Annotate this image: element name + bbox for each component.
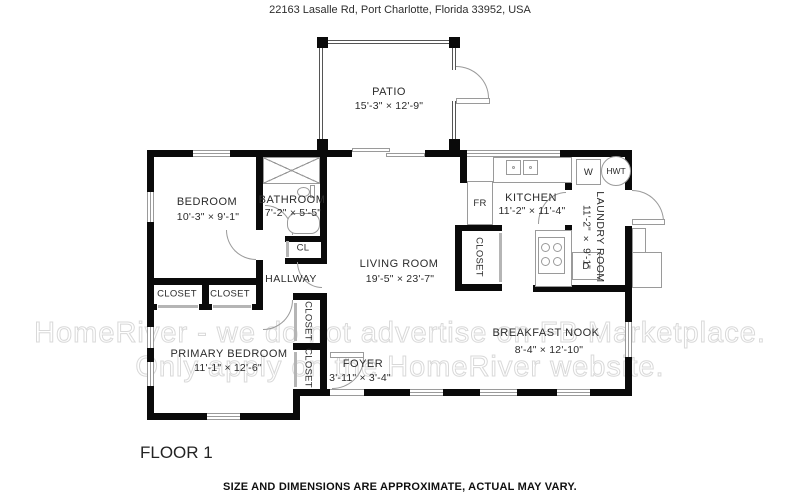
patio-dims: 15'-3" × 12'-9" [355,100,423,112]
sink-drain [512,166,515,169]
patio-screen-wall [319,48,323,139]
stove-burner [541,257,550,266]
closet-door [294,352,297,387]
patio-screen-wall [328,40,449,44]
closet-door [158,305,198,308]
window [207,413,240,420]
refrigerator: FR [467,181,493,225]
patio-door-swing [456,66,489,98]
bedroom-dims: 10'-3" × 9'-1" [177,211,239,223]
wall [455,225,502,231]
closet-door [213,305,251,308]
bedroom-door-swing [226,230,256,260]
sliding-door [386,153,425,157]
window [557,389,590,396]
wall [256,260,263,278]
window [147,192,154,222]
patio-post [317,37,328,48]
hallway-label: HALLWAY [265,273,317,285]
patio-post [317,139,328,150]
cl-closet-label: CL [297,243,310,254]
stoop-step [632,252,662,288]
stove [538,237,565,274]
window [625,322,632,357]
wall [425,150,467,157]
closet-label: CLOSET [303,301,314,341]
exterior-door-swing [632,190,664,222]
sliding-door [352,148,390,152]
front-door-opening [330,389,364,396]
breakfast-nook-dims: 8'-4" × 12'-10" [515,344,583,356]
wall [455,225,462,291]
primary-bedroom-label: PRIMARY BEDROOM [170,348,287,360]
patio-post [449,37,460,48]
wall [199,304,212,310]
patio-label: PATIO [372,86,406,98]
primary-bedroom-dims: 11'-1" × 12'-6" [194,362,262,374]
breakfast-nook-label: BREAKFAST NOOK [492,327,599,339]
sink-drain [529,166,532,169]
wall [147,304,157,310]
primary-bedroom-door-swing [263,300,293,330]
wall [443,389,480,396]
window [147,327,154,348]
window [193,150,230,157]
water-heater: HWT [601,156,631,186]
window [410,389,443,396]
wall [240,413,300,420]
wall [321,236,327,264]
patio-screen-wall [452,101,456,139]
bathroom-label: BATHROOM [259,194,326,206]
floor-plan-drawing: FR W HWT D PATIO 15'-3" × 12'-9" BEDROOM… [0,0,800,499]
wall [252,304,263,310]
laundry-label: LAUNDRY ROOM [594,191,606,282]
laundry-dims: 11'-2" × 9'-1" [581,205,592,269]
washer: W [576,159,601,185]
window [480,389,517,396]
shower [263,157,320,184]
kitchen-label: KITCHEN [505,192,557,204]
wall [625,357,632,396]
wall [625,226,632,322]
wall [517,389,557,396]
living-room-dims: 19'-5" × 23'-7" [366,273,434,285]
stove-burner [541,243,550,252]
floor-plan-page: 22163 Lasalle Rd, Port Charlotte, Florid… [0,0,800,499]
closet-label: CLOSET [157,289,197,300]
closet-door [286,241,289,257]
window [467,150,560,157]
patio-door-leaf [456,98,490,104]
patio-post [449,139,460,150]
wall [230,150,352,157]
wall [455,284,502,291]
closet-label: CLOSET [303,348,314,388]
wall [147,150,154,192]
foyer-label: FOYER [343,358,383,370]
exterior-door-leaf [632,219,665,225]
stove-burner [553,257,562,266]
living-room-label: LIVING ROOM [360,258,439,270]
stove-burner [553,243,562,252]
closet-door [499,233,502,282]
wall [460,157,467,183]
wall [364,389,410,396]
kitchen-dims: 11'-2" × 11'-4" [499,205,566,217]
closet-label: CLOSET [210,289,250,300]
wall [147,413,207,420]
foyer-dims: 3'-11" × 3'-4" [329,372,391,384]
window [147,362,154,386]
closet-door [294,303,297,341]
wall [147,222,154,327]
wall [147,348,154,362]
bedroom-label: BEDROOM [177,196,237,208]
pantry-closet-label: CLOSET [474,237,485,277]
bathroom-dims: 7'-2" × 5'-5" [265,207,321,219]
